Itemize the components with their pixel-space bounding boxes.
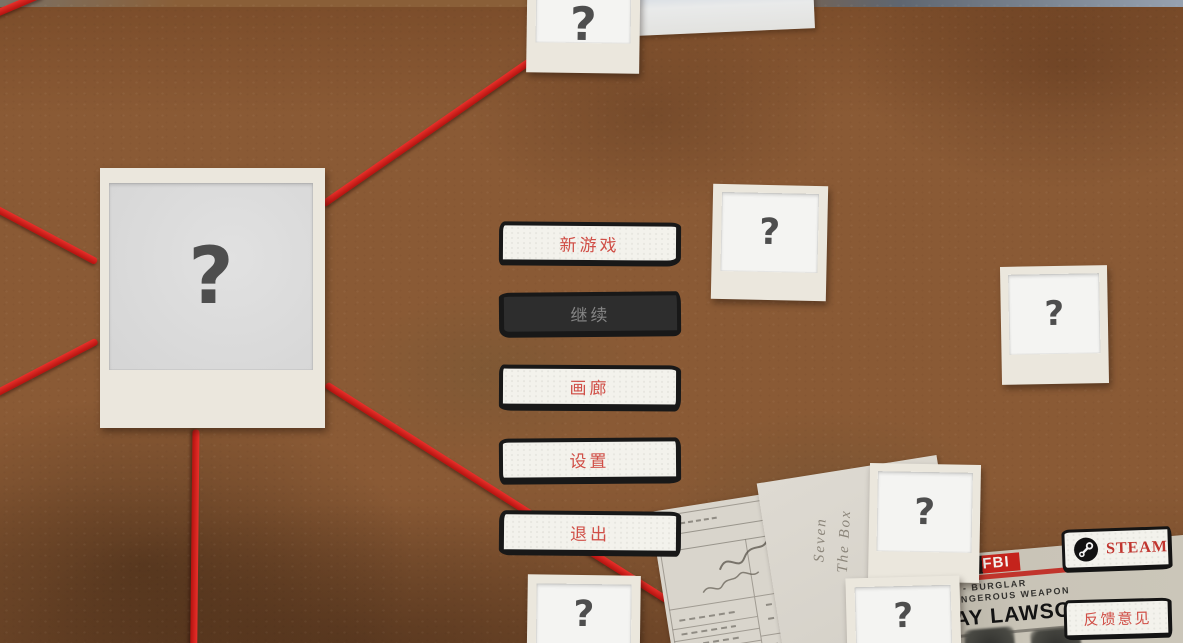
polaroid-unknown-top: ?	[526, 0, 641, 74]
question-mark: ?	[914, 491, 936, 532]
gallery-label: 画廊	[569, 374, 609, 399]
red-string	[190, 429, 199, 643]
main-menu-screen: Seven The Box by FBI T - BURGLAR ANGEROU…	[0, 0, 1183, 643]
polaroid-photo-area: ?	[1008, 273, 1100, 355]
question-mark: ?	[570, 7, 597, 43]
polaroid-photo-area: ?	[536, 0, 632, 44]
polaroid-photo-area: ?	[535, 583, 631, 643]
pinned-paper-top	[635, 0, 815, 36]
gallery-button[interactable]: 画廊	[499, 365, 681, 412]
red-string	[321, 57, 534, 207]
steam-button[interactable]: STEAM	[1061, 526, 1172, 573]
continue-button-disabled[interactable]: 继续	[499, 291, 681, 338]
polaroid-unknown-large: ?	[100, 168, 325, 428]
polaroid-photo-area: ?	[855, 585, 954, 643]
exit-button[interactable]: 退出	[499, 510, 681, 557]
steam-label: STEAM	[1106, 538, 1168, 558]
question-mark: ?	[759, 212, 781, 253]
feedback-label: 反馈意见	[1083, 607, 1152, 630]
red-string	[0, 205, 98, 265]
polaroid-unknown-bottom-center: ?	[526, 574, 641, 643]
red-string	[324, 382, 669, 604]
question-mark: ?	[573, 594, 594, 635]
settings-button[interactable]: 设置	[499, 437, 681, 484]
question-mark: ?	[188, 232, 233, 322]
continue-label: 继续	[570, 301, 610, 326]
new-game-label: 新游戏	[559, 230, 619, 255]
polaroid-photo-area: ?	[109, 183, 313, 370]
feedback-button[interactable]: 反馈意见	[1063, 598, 1172, 641]
polaroid-unknown-bottom-right-upper: ?	[868, 463, 981, 583]
polaroid-photo-area: ?	[877, 471, 973, 553]
polaroid-unknown-right: ?	[1000, 265, 1109, 385]
polaroid-unknown-bottom-right-lower: ?	[845, 576, 962, 643]
question-mark: ?	[893, 596, 914, 637]
exit-label: 退出	[570, 520, 610, 545]
settings-label: 设置	[569, 447, 609, 472]
red-string	[0, 338, 99, 397]
steam-icon	[1073, 536, 1100, 564]
polaroid-unknown-middle: ?	[711, 184, 828, 301]
new-game-button[interactable]: 新游戏	[499, 221, 681, 266]
polaroid-photo-area: ?	[720, 192, 819, 273]
question-mark: ?	[1044, 294, 1064, 334]
